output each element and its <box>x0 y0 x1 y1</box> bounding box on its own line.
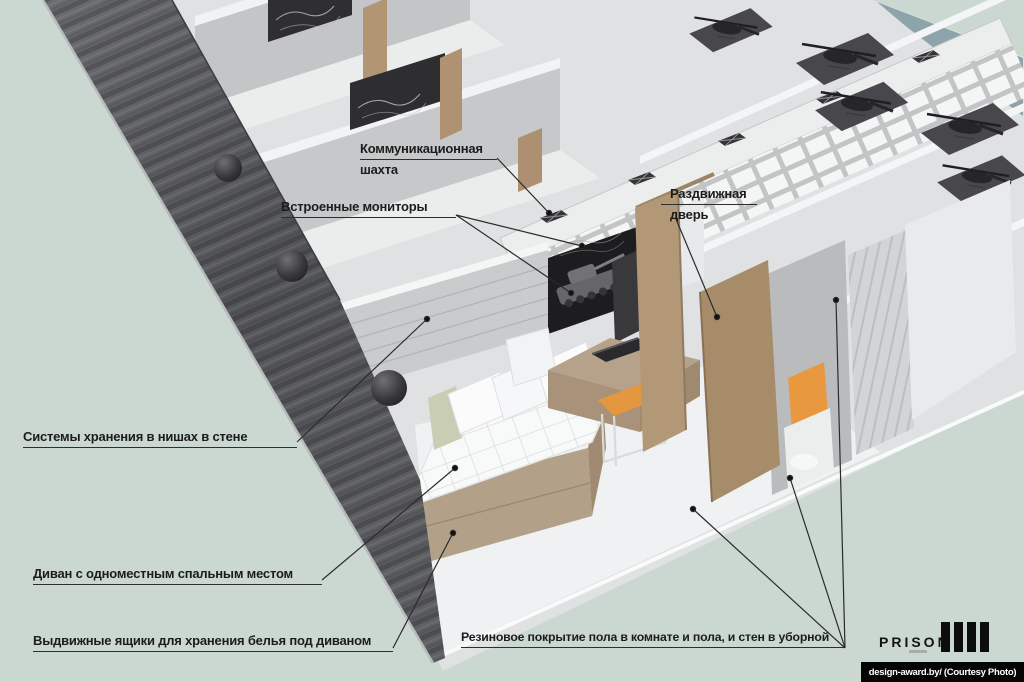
annotation-text: Системы хранения в нишах в стене <box>23 429 297 448</box>
annotation-built-in-monitors: Встроенные мониторы <box>281 199 456 218</box>
annotation-text: дверь <box>661 205 757 223</box>
photo-credit-watermark: design-award.by/ (Courtesy Photo) <box>861 662 1024 682</box>
annotation-text: шахта <box>360 160 497 178</box>
annotation-rubber-floor: Резиновое покрытие пола в комнате и пола… <box>461 630 845 648</box>
barcode-logo-icon <box>941 622 993 652</box>
plank-wall <box>848 230 914 455</box>
annotation-linen-drawers: Выдвижные ящики для хранения белья под д… <box>33 633 393 652</box>
annotation-communication-shaft: Коммуникационная шахта <box>360 141 497 177</box>
annotation-text: Выдвижные ящики для хранения белья под д… <box>33 633 393 652</box>
annotation-sofa-bed: Диван с одноместным спальным местом <box>33 566 322 585</box>
shaft-column <box>440 48 462 140</box>
annotation-text: Встроенные мониторы <box>281 199 456 218</box>
shaft-column <box>518 128 542 192</box>
logo-subtext-mark <box>909 650 927 653</box>
doorway-opening <box>612 250 641 343</box>
annotation-text: Раздвижная <box>661 186 757 205</box>
logo-text: PRISON <box>879 634 951 650</box>
prison-cell-rendering: Коммуникационная шахта Встроенные монито… <box>0 0 1024 682</box>
sliding-door-panel <box>700 260 780 502</box>
annotation-text: Диван с одноместным спальным местом <box>33 566 322 585</box>
annotation-sliding-door: Раздвижная дверь <box>661 186 757 222</box>
prison-logo: PRISON <box>879 629 1009 663</box>
credit-text: design-award.by/ (Courtesy Photo) <box>869 667 1016 678</box>
annotation-text: Коммуникационная <box>360 141 497 160</box>
annotation-wall-storage: Системы хранения в нишах в стене <box>23 429 297 448</box>
annotation-text: Резиновое покрытие пола в комнате и пола… <box>461 630 845 648</box>
